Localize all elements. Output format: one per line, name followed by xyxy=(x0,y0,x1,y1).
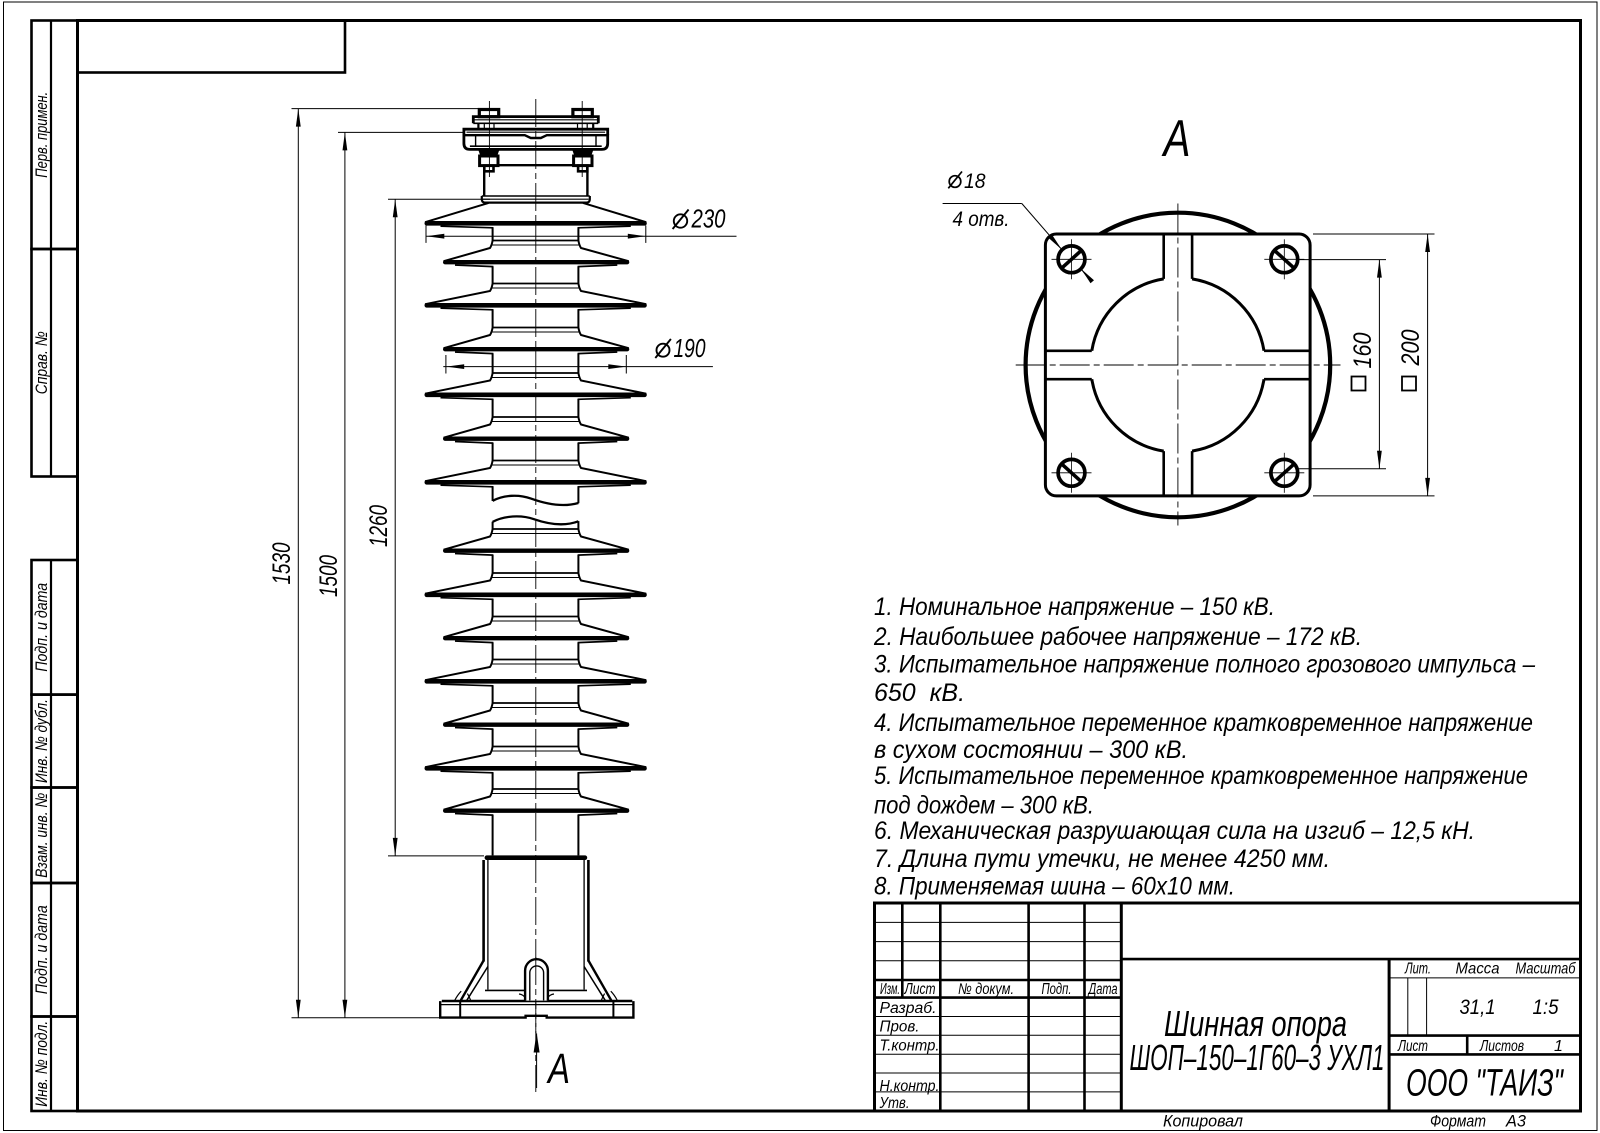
svg-text:Лист: Лист xyxy=(1397,1038,1428,1055)
svg-text:ШОП–150–1Г60–3 УХЛ1: ШОП–150–1Г60–3 УХЛ1 xyxy=(1130,1037,1385,1078)
svg-text:Масса: Масса xyxy=(1456,961,1500,978)
svg-text:4. Испытательное переменное кр: 4. Испытательное переменное кратковремен… xyxy=(874,709,1533,737)
svg-text:3. Испытательное напряжение по: 3. Испытательное напряжение полного гроз… xyxy=(874,651,1536,679)
svg-text:Подп. и дата: Подп. и дата xyxy=(32,905,51,994)
svg-text:Инв. № подл.: Инв. № подл. xyxy=(32,1021,51,1107)
svg-text:Листов: Листов xyxy=(1479,1038,1524,1055)
svg-text:1. Номинальное напряжение – 15: 1. Номинальное напряжение – 150 кВ. xyxy=(874,593,1275,621)
svg-text:Пров.: Пров. xyxy=(880,1019,920,1036)
svg-text:Утв.: Утв. xyxy=(879,1095,910,1112)
svg-text:Копировал: Копировал xyxy=(1163,1112,1243,1131)
svg-text:А: А xyxy=(546,1045,570,1093)
svg-text:230: 230 xyxy=(691,204,726,234)
svg-text:Инв. № дубл.: Инв. № дубл. xyxy=(32,699,51,783)
svg-text:Масштаб: Масштаб xyxy=(1516,961,1577,978)
svg-text:6. Механическая разрушающая си: 6. Механическая разрушающая сила на изги… xyxy=(874,817,1475,845)
svg-text:2. Наибольшее рабочее напряжен: 2. Наибольшее рабочее напряжение – 172 к… xyxy=(873,623,1362,651)
svg-text:А3: А3 xyxy=(1505,1112,1526,1131)
svg-text:Лит.: Лит. xyxy=(1404,961,1431,978)
svg-text:5. Испытательное переменное кр: 5. Испытательное переменное кратковремен… xyxy=(874,762,1528,790)
svg-text:1: 1 xyxy=(1554,1038,1563,1055)
svg-text:Формат: Формат xyxy=(1430,1112,1486,1131)
svg-text:1260: 1260 xyxy=(365,505,393,547)
svg-text:650 кВ.: 650 кВ. xyxy=(874,679,965,707)
svg-text:160: 160 xyxy=(1349,332,1377,368)
svg-text:Т.контр.: Т.контр. xyxy=(880,1038,940,1055)
svg-text:18: 18 xyxy=(964,170,986,193)
svg-text:31,1: 31,1 xyxy=(1460,996,1496,1019)
svg-text:Разраб.: Разраб. xyxy=(880,1000,937,1017)
svg-text:№ докум.: № докум. xyxy=(958,981,1014,998)
svg-text:8. Применяемая шина – 60х10 мм: 8. Применяемая шина – 60х10 мм. xyxy=(874,873,1235,901)
svg-text:Взам. инв. №: Взам. инв. № xyxy=(32,793,51,878)
svg-text:1530: 1530 xyxy=(268,542,296,584)
svg-text:Перв. примен.: Перв. примен. xyxy=(32,92,51,178)
svg-text:Лист: Лист xyxy=(904,981,936,998)
svg-text:7. Длина пути утечки, не менее: 7. Длина пути утечки, не менее 4250 мм. xyxy=(874,845,1330,873)
svg-text:Изм.: Изм. xyxy=(880,981,900,998)
svg-text:Справ. №: Справ. № xyxy=(32,331,51,394)
svg-text:1500: 1500 xyxy=(315,555,343,597)
svg-text:1:5: 1:5 xyxy=(1533,996,1559,1019)
svg-text:ООО "ТАИЗ": ООО "ТАИЗ" xyxy=(1406,1063,1564,1105)
svg-text:Дата: Дата xyxy=(1087,981,1118,998)
svg-text:4 отв.: 4 отв. xyxy=(953,208,1010,231)
svg-text:под дождем – 300 кВ.: под дождем – 300 кВ. xyxy=(874,792,1094,820)
svg-text:А: А xyxy=(1161,110,1190,168)
svg-text:в сухом состоянии – 300 кВ.: в сухом состоянии – 300 кВ. xyxy=(874,736,1188,764)
svg-text:190: 190 xyxy=(674,333,706,363)
svg-text:Н.контр.: Н.контр. xyxy=(880,1078,940,1095)
svg-text:Подп.: Подп. xyxy=(1042,981,1072,998)
svg-text:Подп. и дата: Подп. и дата xyxy=(32,583,51,672)
svg-text:200: 200 xyxy=(1397,329,1425,366)
